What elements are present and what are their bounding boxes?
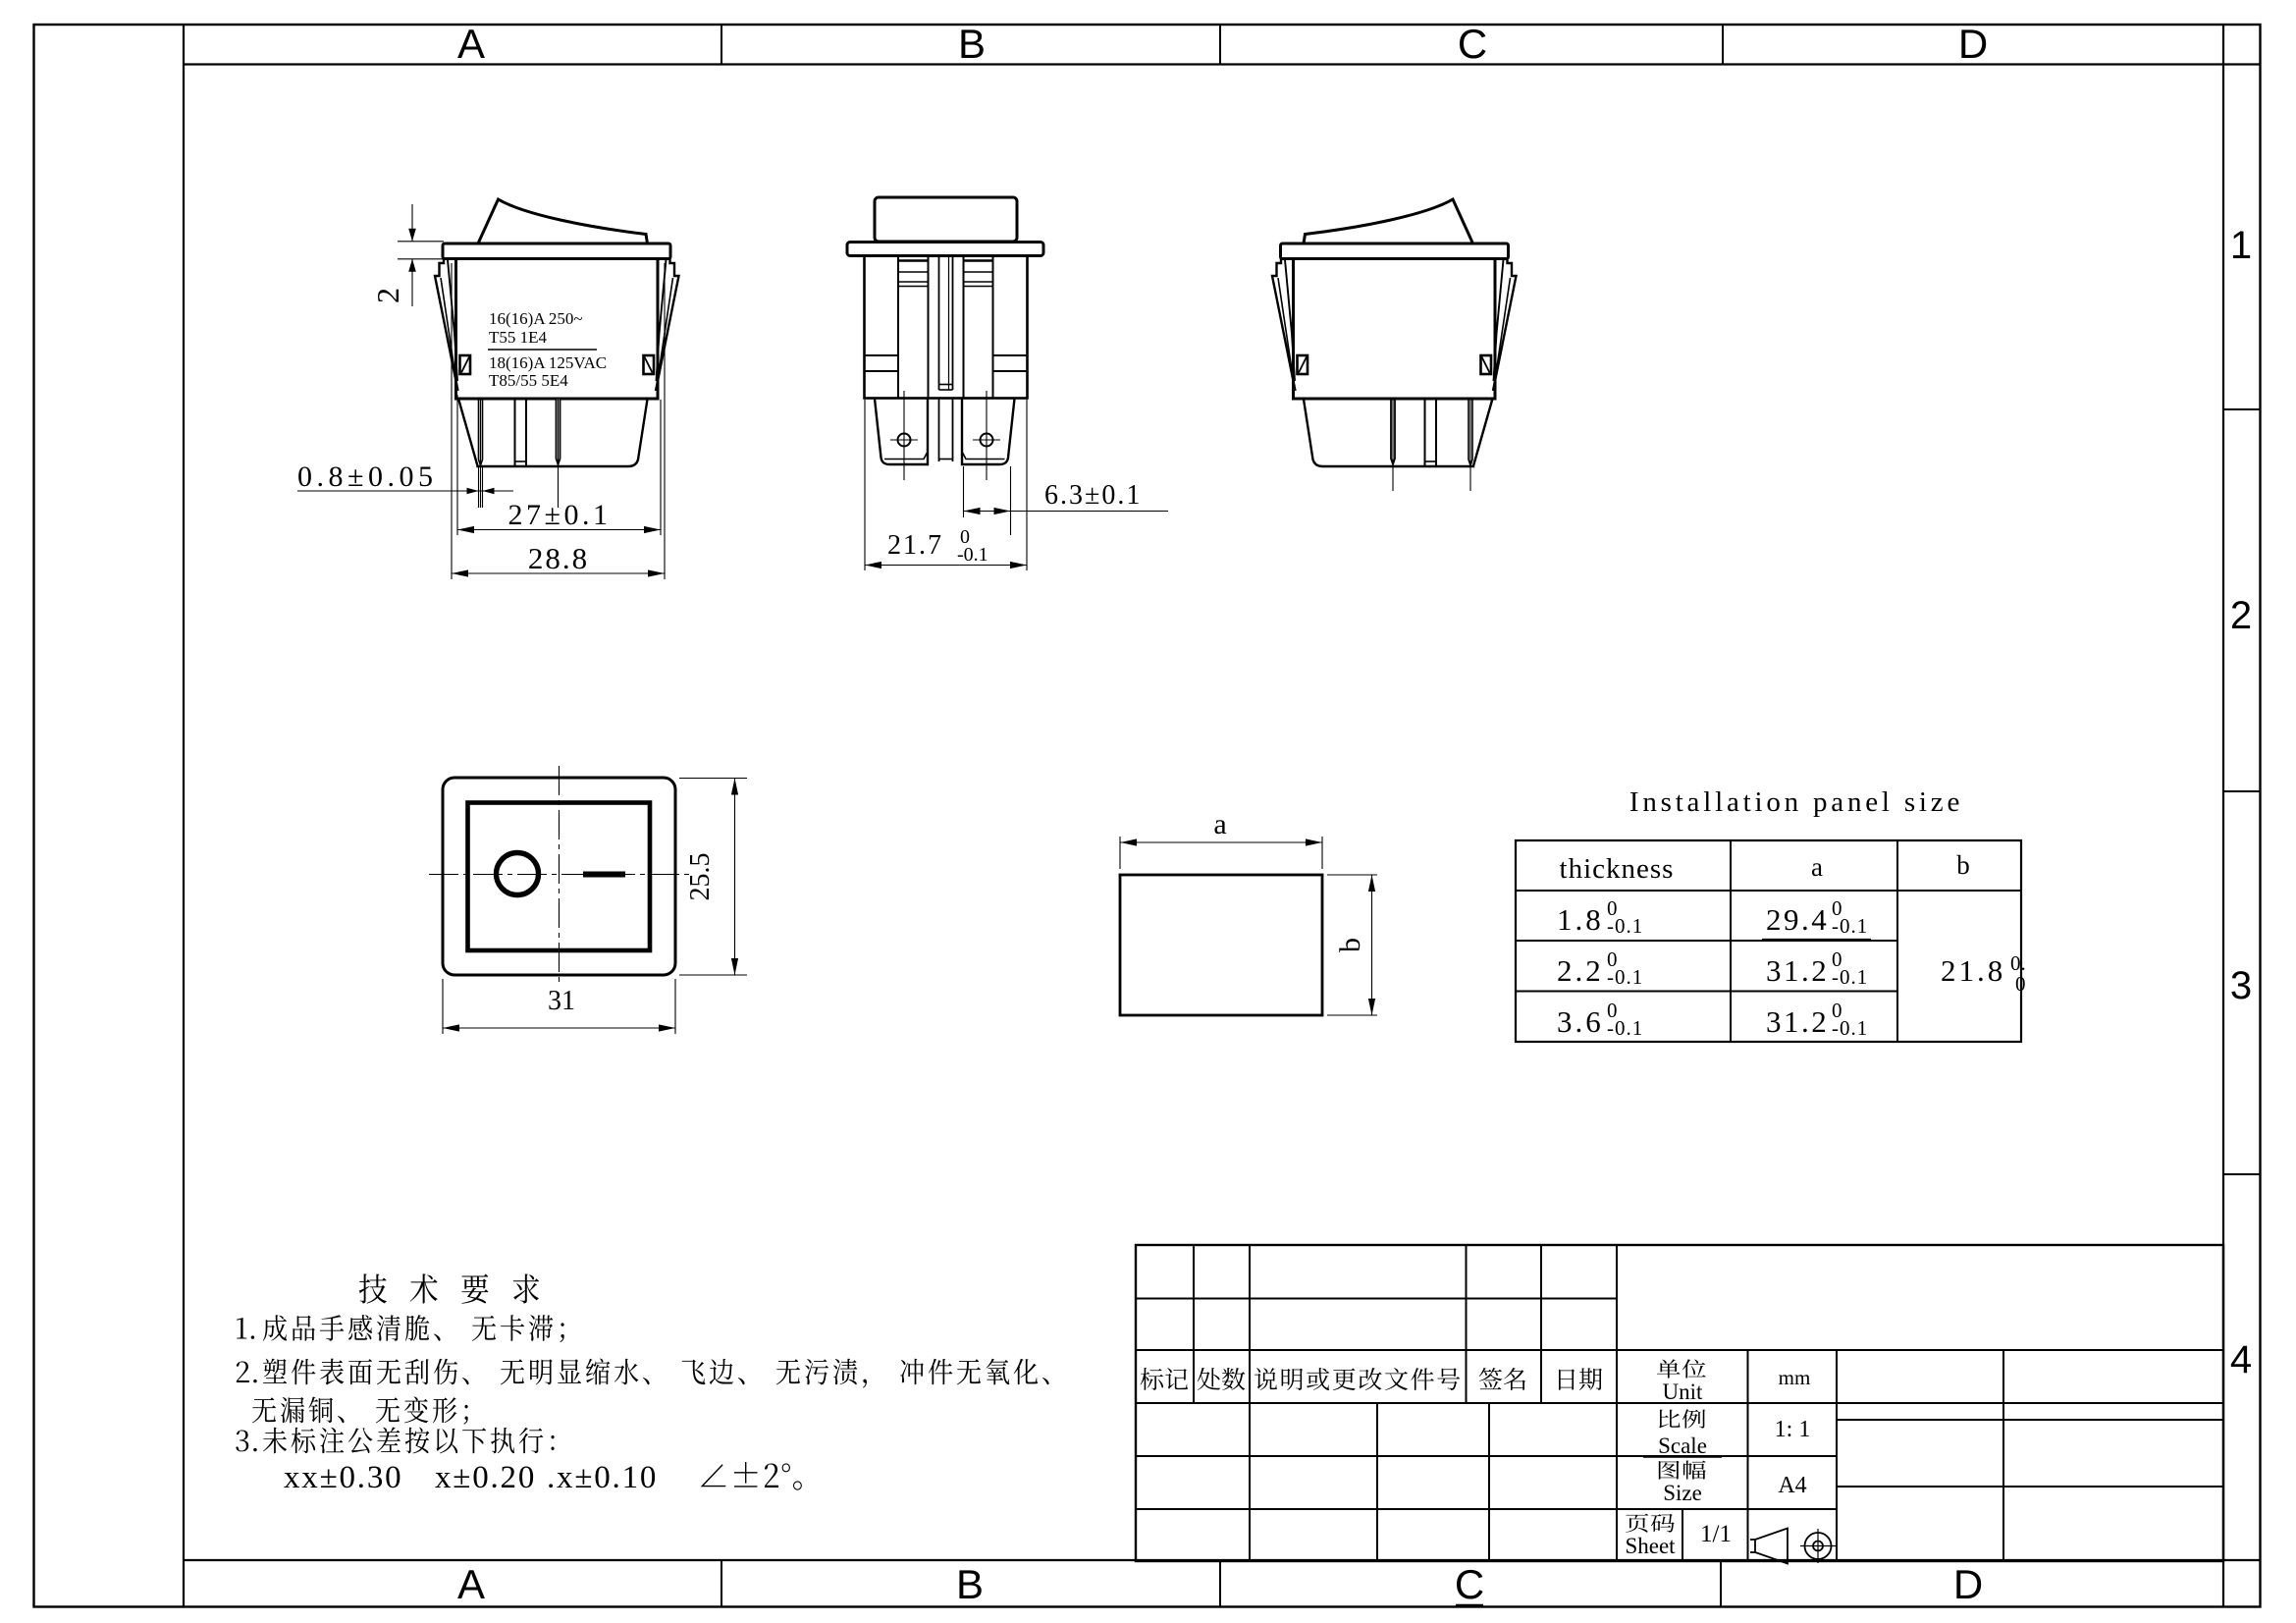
svg-text:.x±0.10: .x±0.10 (547, 1460, 658, 1495)
svg-text:D: D (1958, 21, 1988, 67)
svg-text:31.2: 31.2 (1766, 953, 1829, 988)
svg-text:Size: Size (1663, 1481, 1702, 1505)
svg-text:1.8: 1.8 (1557, 902, 1604, 937)
svg-text:T85/55 5E4: T85/55 5E4 (489, 371, 568, 390)
svg-text:D: D (1953, 1561, 1983, 1607)
svg-text:29.4: 29.4 (1766, 902, 1829, 937)
svg-text:4: 4 (2230, 1338, 2252, 1381)
svg-text:2: 2 (370, 288, 405, 303)
svg-text:A4: A4 (1778, 1473, 1806, 1498)
svg-text:16(16)A 250~: 16(16)A 250~ (489, 309, 583, 328)
svg-text:-0.1: -0.1 (1832, 1016, 1868, 1040)
svg-text:C: C (1458, 21, 1487, 67)
svg-text:2: 2 (2230, 594, 2252, 637)
svg-text:-0.1: -0.1 (1832, 914, 1868, 938)
svg-text:x±0.20: x±0.20 (435, 1460, 536, 1495)
svg-text:Unit: Unit (1663, 1380, 1704, 1404)
svg-text:31.2: 31.2 (1766, 1004, 1829, 1039)
svg-text:A: A (457, 1561, 485, 1607)
svg-text:25.5: 25.5 (685, 853, 716, 901)
svg-text:27±0.1: 27±0.1 (508, 499, 612, 531)
svg-text:28.8: 28.8 (528, 541, 589, 575)
svg-text:0.8±0.05: 0.8±0.05 (297, 460, 437, 493)
svg-text:Installation panel size: Installation panel size (1629, 786, 1963, 818)
svg-text:mm: mm (1779, 1366, 1811, 1389)
svg-text:21.8: 21.8 (1941, 953, 2005, 988)
svg-text:xx±0.30: xx±0.30 (284, 1460, 402, 1495)
svg-text:2.2: 2.2 (1557, 953, 1604, 988)
svg-text:1: 1: 1: 1 (1775, 1417, 1811, 1442)
svg-text:A: A (457, 21, 485, 67)
svg-text:-0.1: -0.1 (1607, 914, 1643, 938)
svg-text:-0.1: -0.1 (1607, 965, 1643, 989)
svg-text:Scale: Scale (1658, 1434, 1707, 1458)
svg-text:Sheet: Sheet (1625, 1534, 1676, 1558)
svg-text:1: 1 (2230, 224, 2252, 267)
svg-text:3: 3 (2230, 964, 2252, 1007)
svg-text:1/1: 1/1 (1700, 1521, 1732, 1547)
svg-text:C: C (1455, 1561, 1484, 1607)
svg-text:-0.1: -0.1 (1607, 1016, 1643, 1040)
svg-text:B: B (956, 1561, 984, 1607)
svg-text:B: B (958, 21, 986, 67)
svg-text:a: a (1811, 852, 1823, 882)
svg-text:b: b (1956, 850, 1970, 880)
svg-text:thickness: thickness (1560, 853, 1675, 885)
svg-text:0: 0 (2015, 972, 2026, 996)
svg-text:3.6: 3.6 (1557, 1004, 1604, 1039)
svg-text:T55 1E4: T55 1E4 (489, 328, 548, 347)
svg-text:18(16)A 125VAC: 18(16)A 125VAC (489, 353, 607, 372)
svg-text:6.3±0.1: 6.3±0.1 (1044, 480, 1142, 511)
svg-text:b: b (1334, 938, 1366, 952)
svg-text:a: a (1213, 808, 1226, 840)
svg-text:31: 31 (548, 986, 575, 1016)
svg-text:-0.1: -0.1 (1832, 965, 1868, 989)
svg-text:-0.1: -0.1 (957, 544, 988, 566)
svg-text:21.7: 21.7 (887, 530, 943, 561)
